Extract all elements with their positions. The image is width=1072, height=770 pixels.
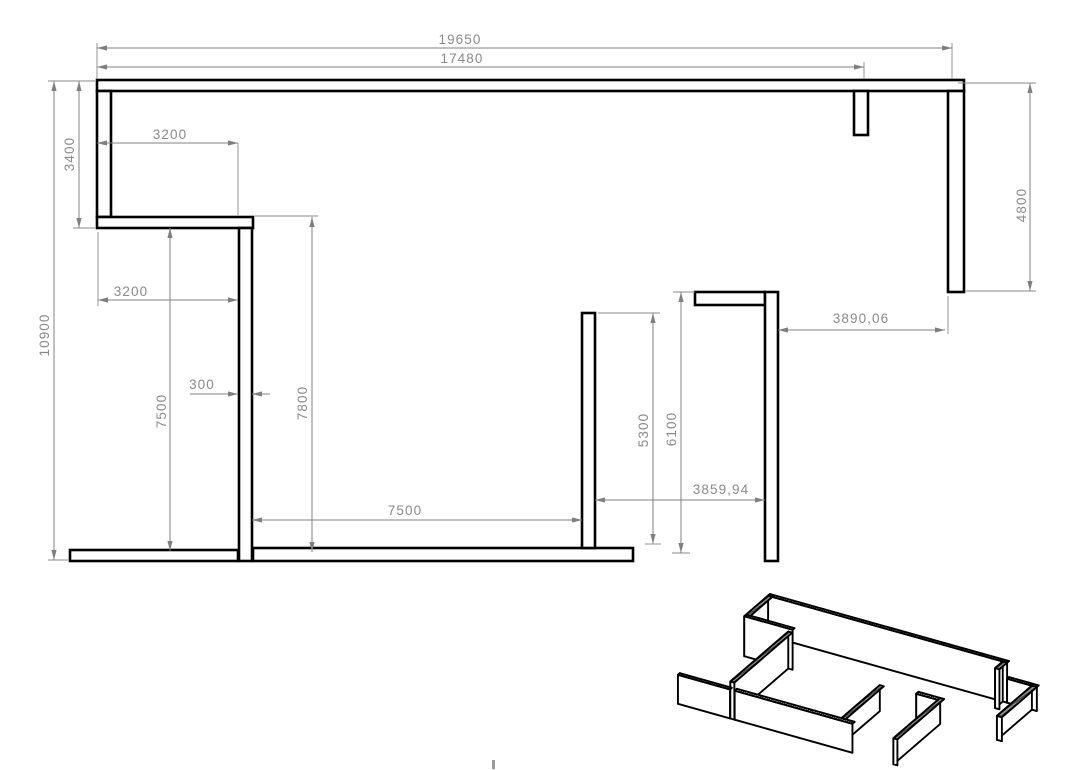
iso-face-south (893, 738, 897, 765)
wall-bottom-left-wall (70, 550, 238, 561)
wall-top-wall (97, 80, 964, 91)
dimension-arrowhead (650, 313, 655, 323)
iso-face-south (995, 668, 999, 709)
iso-wall-bottom-left-wall (678, 673, 732, 718)
dimension-arrowhead (228, 140, 238, 145)
dimension-label: 300 (189, 377, 215, 392)
iso-face-south (735, 691, 853, 753)
wall-bottom-center-wall (253, 548, 633, 561)
isometric-view (678, 594, 1039, 765)
dimension-label: 3200 (153, 127, 187, 142)
dimension-arrowhead (935, 327, 945, 332)
dimension-label: 3890,06 (833, 311, 890, 326)
dimension-arrowhead (228, 391, 238, 396)
dimension-label: 5300 (636, 413, 651, 447)
dimension-arrowhead (778, 327, 788, 332)
dimension-7500: 7500 (154, 228, 173, 551)
wall-top-stub-wall (854, 91, 868, 135)
dimension-arrowhead (97, 64, 107, 69)
dimension-3890,06: 3890,06 (778, 296, 948, 334)
dimension-5300: 5300 (598, 313, 661, 544)
dimension-arrowhead (76, 218, 81, 228)
dimension-arrowhead (854, 64, 864, 69)
dimension-arrowhead (252, 517, 262, 522)
cad-drawing-canvas: 1965017480340010900320032003007500780075… (0, 0, 1072, 770)
plan-view (70, 80, 964, 561)
dimension-arrowhead (942, 45, 952, 50)
dimension-7500: 7500 (252, 503, 582, 523)
dimension-label: 3859,94 (693, 482, 750, 497)
dimension-layer: 1965017480340010900320032003007500780075… (37, 32, 1036, 560)
dimension-label: 7800 (295, 386, 310, 420)
wall-right-wall (948, 91, 964, 292)
wall-center-partition-wall (239, 228, 252, 561)
wall-right-return-wall (695, 292, 765, 305)
iso-wall-bottom-center-wall (735, 689, 855, 753)
technical-drawing-sheet: 1965017480340010900320032003007500780075… (0, 0, 1072, 770)
iso-face-south (997, 716, 1002, 741)
dimension-label: 7500 (388, 503, 422, 518)
dimension-4800: 4800 (958, 83, 1036, 291)
dimension-arrowhead (51, 81, 56, 91)
dimension-7800: 7800 (255, 216, 318, 552)
dimension-arrowhead (650, 534, 655, 544)
dimension-arrowhead (228, 297, 238, 302)
dimension-arrowhead (309, 217, 314, 227)
dimension-arrowhead (97, 45, 107, 50)
dimension-3859,94: 3859,94 (595, 482, 765, 503)
sheet-edge-tick (492, 760, 495, 769)
wall-upper-left-return-wall (97, 217, 253, 228)
dimension-arrowhead (1027, 281, 1032, 291)
dimension-3200: 3200 (98, 232, 238, 306)
dimension-arrowhead (252, 391, 262, 396)
dimension-6100: 6100 (664, 292, 695, 553)
dimension-label: 6100 (664, 412, 679, 446)
iso-wall-top-wall-main (768, 594, 1009, 703)
dimension-300: 300 (189, 377, 270, 397)
dimension-17480: 17480 (97, 51, 864, 79)
wall-mid-partition-wall (582, 313, 595, 548)
dimension-arrowhead (98, 297, 108, 302)
dimension-arrowhead (678, 543, 683, 553)
dimension-3200: 3200 (97, 127, 238, 215)
dimension-arrowhead (572, 517, 582, 522)
artifact-layer (492, 760, 495, 769)
dimension-arrowhead (51, 550, 56, 560)
dimension-label: 7500 (154, 394, 169, 428)
dimension-label: 4800 (1014, 188, 1029, 222)
dimension-arrowhead (595, 497, 605, 502)
dimension-19650: 19650 (97, 32, 952, 79)
dimension-arrowhead (755, 497, 765, 502)
dimension-label: 17480 (440, 51, 483, 66)
iso-face-south (768, 596, 1007, 703)
dimension-label: 3400 (62, 137, 77, 171)
dimension-arrowhead (678, 292, 683, 302)
wall-left-wall (97, 91, 111, 217)
dimension-label: 19650 (438, 32, 481, 47)
dimension-label: 3200 (114, 284, 148, 299)
dimension-3400: 3400 (62, 81, 95, 228)
dimension-arrowhead (76, 81, 81, 91)
dimension-label: 10900 (37, 313, 52, 356)
dimension-arrowhead (167, 228, 172, 238)
dimension-arrowhead (1027, 83, 1032, 93)
wall-right-partition-wall (765, 292, 778, 561)
